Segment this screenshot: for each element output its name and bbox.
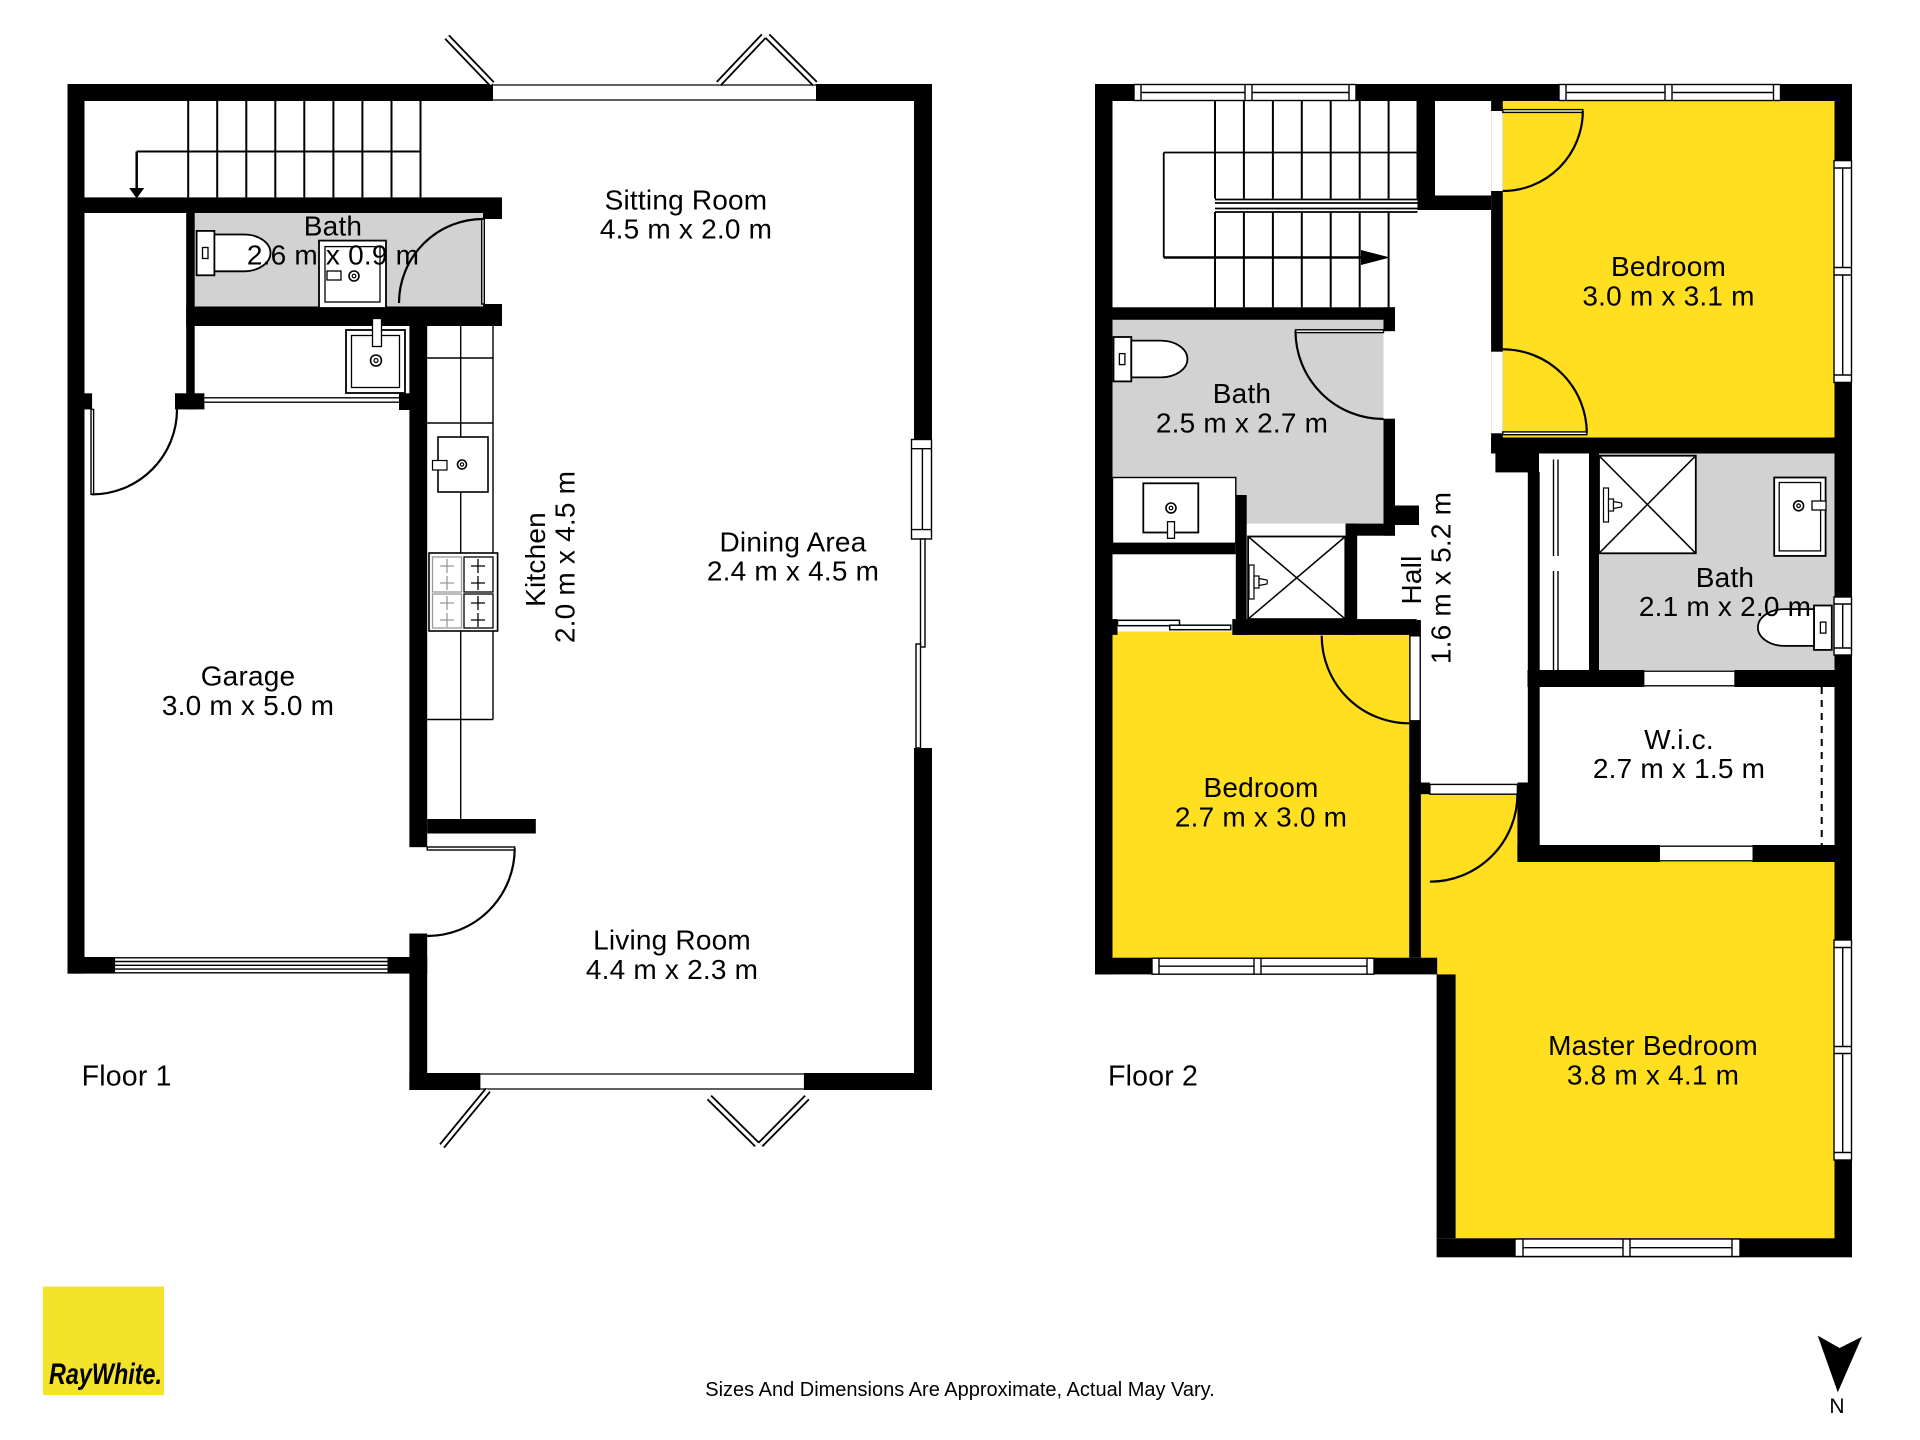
svg-text:2.7 m x 3.0 m: 2.7 m x 3.0 m [1175,801,1347,832]
svg-text:Garage: Garage [201,661,296,692]
svg-text:Sitting Room: Sitting Room [605,184,768,215]
svg-text:Kitchen: Kitchen [520,512,551,607]
svg-text:Bath: Bath [304,210,362,241]
svg-text:2.4 m x 4.5 m: 2.4 m x 4.5 m [707,556,879,587]
svg-text:N: N [1829,1395,1844,1418]
svg-text:3.8 m x 4.1 m: 3.8 m x 4.1 m [1567,1060,1739,1091]
svg-text:2.6 m x 0.9 m: 2.6 m x 0.9 m [247,240,419,271]
svg-text:Bath: Bath [1213,378,1271,409]
svg-text:Floor 2: Floor 2 [1108,1060,1198,1092]
svg-text:W.i.c.: W.i.c. [1644,724,1714,755]
svg-text:4.5 m x 2.0 m: 4.5 m x 2.0 m [600,214,772,245]
svg-text:Bath: Bath [1696,562,1754,593]
svg-text:Bedroom: Bedroom [1611,251,1726,282]
svg-text:Bedroom: Bedroom [1203,772,1318,803]
svg-text:Floor 1: Floor 1 [82,1060,172,1092]
svg-text:1.6 m x 5.2 m: 1.6 m x 5.2 m [1425,492,1456,664]
svg-text:Hall: Hall [1396,555,1427,604]
svg-text:Sizes And Dimensions Are Appro: Sizes And Dimensions Are Approximate, Ac… [705,1379,1215,1401]
svg-text:3.0 m x 5.0 m: 3.0 m x 5.0 m [162,690,334,721]
svg-text:2.7 m x 1.5 m: 2.7 m x 1.5 m [1593,753,1765,784]
svg-text:3.0 m x 3.1 m: 3.0 m x 3.1 m [1582,280,1754,311]
svg-text:2.1 m x 2.0 m: 2.1 m x 2.0 m [1639,591,1811,622]
svg-text:2.0 m x 4.5 m: 2.0 m x 4.5 m [550,471,581,643]
svg-text:4.4 m x 2.3 m: 4.4 m x 2.3 m [586,954,758,985]
svg-text:Living Room: Living Room [593,925,751,956]
svg-text:RayWhite.: RayWhite. [49,1358,162,1391]
svg-text:Master Bedroom: Master Bedroom [1548,1030,1758,1061]
svg-text:Dining Area: Dining Area [720,526,867,557]
svg-text:2.5 m x 2.7 m: 2.5 m x 2.7 m [1156,408,1328,439]
